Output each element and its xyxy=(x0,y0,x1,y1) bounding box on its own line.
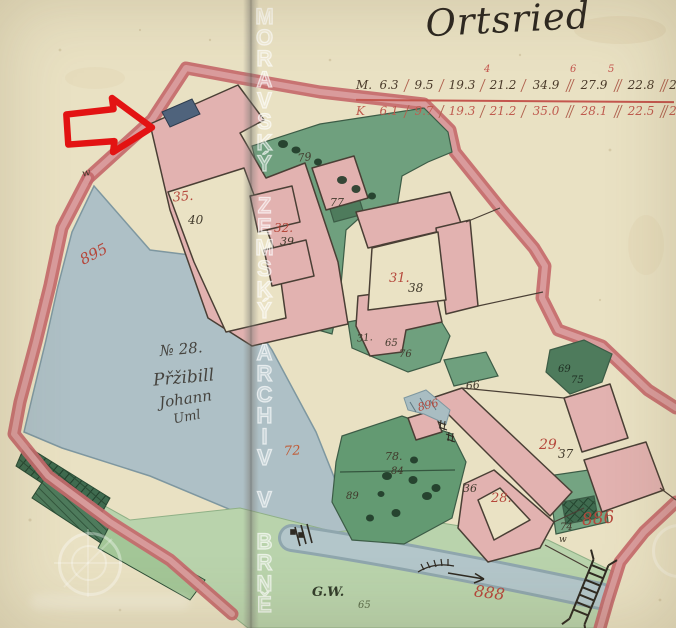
label-77: 77 xyxy=(330,196,344,209)
label-72: 72 xyxy=(283,443,301,459)
scale-cell: 6.3 xyxy=(374,78,404,92)
scale-row-m: M. 6.3 9.5 19.3 21.2 34.9 27.9 22.8 2 xyxy=(356,78,676,92)
scale-divider xyxy=(659,79,665,92)
scale-superscript-2: 6 xyxy=(570,64,576,75)
label-37: 37 xyxy=(558,447,574,461)
label-888: 888 xyxy=(473,581,506,604)
label-39: 39 xyxy=(280,235,294,248)
scale-cell: 19.3 xyxy=(444,104,480,118)
label-66: 66 xyxy=(465,378,480,392)
label-31: 31. xyxy=(389,271,410,286)
label-886: 886 xyxy=(581,507,615,530)
scale-table: 4 6 5 M. 6.3 9.5 19.3 21.2 34.9 27.9 22.… xyxy=(356,62,676,120)
label-40: 40 xyxy=(187,213,204,227)
scale-cell: 34.9 xyxy=(526,78,566,92)
label-69: 69 xyxy=(558,364,571,375)
scale-cell: 6.1 xyxy=(374,104,404,118)
scale-superscript-3: 5 xyxy=(608,64,614,75)
scale-cell: 2 xyxy=(668,104,676,118)
label-35: 35. xyxy=(172,189,194,206)
scale-cell: 9.7 xyxy=(409,104,439,118)
watermark-text-smudge xyxy=(30,594,190,610)
scale-rule-line xyxy=(356,99,674,103)
building-29-north xyxy=(564,384,628,452)
label-84: 84 xyxy=(391,466,404,477)
label-36: 36 xyxy=(463,482,477,495)
label-31b: 31. xyxy=(356,332,373,344)
scale-cell: 22.8 xyxy=(622,78,660,92)
scale-cell: 21.2 xyxy=(485,78,521,92)
label-74: 74 xyxy=(560,522,573,533)
label-74w: w xyxy=(559,535,567,545)
scale-divider xyxy=(565,79,571,92)
label-gw: G.W. xyxy=(312,585,344,600)
label-79: 79 xyxy=(297,150,313,165)
scale-cell: 28.1 xyxy=(574,104,614,118)
watermark-logo-icon xyxy=(58,532,122,596)
map-canvas: 35. 40 32. 39 79 77 31. 38 31. 65 76 66 … xyxy=(0,0,676,628)
label-78: 78. xyxy=(385,450,403,463)
scale-divider xyxy=(613,79,619,92)
scale-cell: 9.5 xyxy=(409,78,439,92)
scale-cell: 2 xyxy=(668,78,676,92)
scale-cell: 19.3 xyxy=(444,78,480,92)
scale-divider xyxy=(565,105,571,118)
scale-row-k: K 6.1 9.7 19.3 21.2 35.0 28.1 22.5 2 xyxy=(356,104,676,118)
field-inscription: № 28. Přžibill Johann Uml xyxy=(121,335,248,430)
scale-superscript-1: 4 xyxy=(484,64,490,75)
scale-cell: 35.0 xyxy=(526,104,566,118)
scale-row-k-label: K xyxy=(356,104,374,118)
label-75: 75 xyxy=(571,375,584,386)
label-65: 65 xyxy=(385,338,398,349)
label-89: 89 xyxy=(346,491,359,502)
scale-divider xyxy=(613,105,619,118)
label-65b: 65 xyxy=(358,600,371,611)
archive-watermark-text: MORAVSKÝ ZEMSKÝ ARCHIV V BRNĚ xyxy=(251,4,277,626)
scale-row-m-label: M. xyxy=(356,78,374,92)
scale-cell: 21.2 xyxy=(485,104,521,118)
label-28: 28. xyxy=(490,491,512,506)
label-76: 76 xyxy=(399,349,412,360)
scale-cell: 27.9 xyxy=(574,78,614,92)
label-38: 38 xyxy=(408,281,424,295)
scale-cell: 22.5 xyxy=(622,104,660,118)
scale-divider xyxy=(659,105,665,118)
